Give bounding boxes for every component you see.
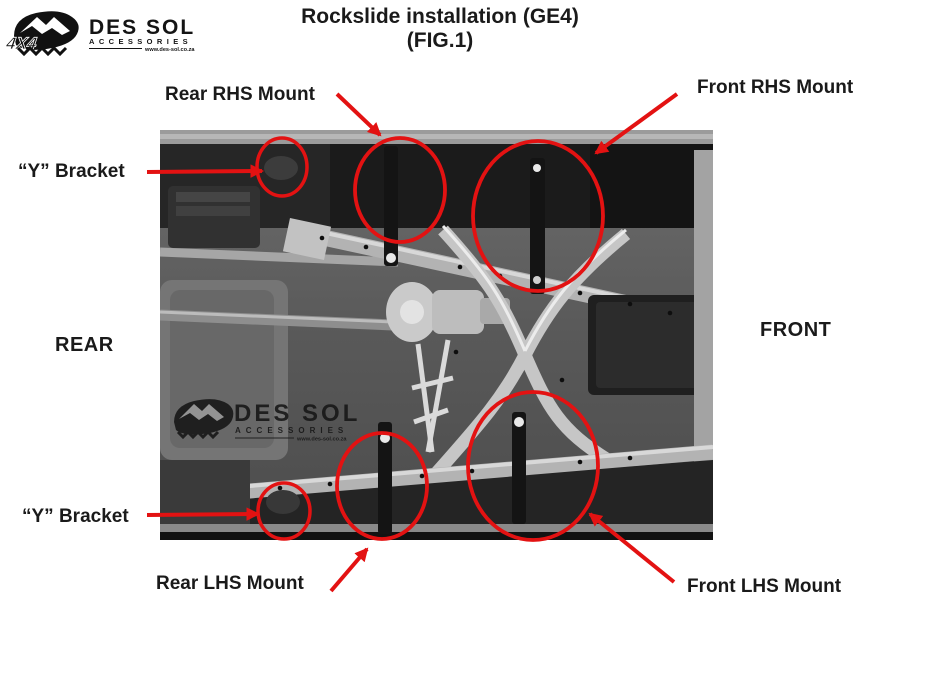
label-front-direction: FRONT — [760, 319, 831, 342]
arrow-rear-lhs-mount — [331, 549, 367, 591]
label-rear-lhs-mount: Rear LHS Mount — [156, 573, 304, 595]
des-sol-logo: 4X4 DES SOL ACCESSORIES www.des-sol.co.z… — [4, 4, 216, 60]
figure-title: Rockslide installation (GE4) (FIG.1) — [240, 5, 640, 53]
logo-tagline-text: ACCESSORIES — [89, 37, 192, 46]
watermark-website-text: www.des-sol.co.za — [296, 437, 347, 443]
label-rear-rhs-mount: Rear RHS Mount — [165, 84, 315, 106]
figure-page: 4X4 DES SOL ACCESSORIES www.des-sol.co.z… — [0, 0, 936, 700]
figure-title-line1: Rockslide installation (GE4) — [240, 5, 640, 29]
underbody-photo-graphic: DES SOL ACCESSORIES www.des-sol.co.za — [160, 130, 713, 540]
watermark-brand-text: DES SOL — [234, 400, 360, 427]
des-sol-logo-graphic: 4X4 DES SOL ACCESSORIES www.des-sol.co.z… — [4, 4, 216, 60]
label-y-bracket-rear: “Y” Bracket — [18, 161, 125, 183]
label-rear-direction: REAR — [55, 334, 114, 357]
label-front-lhs-mount: Front LHS Mount — [687, 576, 841, 598]
vehicle-underside-photo: DES SOL ACCESSORIES www.des-sol.co.za — [160, 130, 713, 540]
label-front-rhs-mount: Front RHS Mount — [697, 77, 853, 99]
4x4-mountain-icon: 4X4 — [4, 11, 79, 54]
arrow-rear-rhs-mount — [337, 94, 380, 135]
watermark-tagline-text: ACCESSORIES — [235, 426, 348, 435]
figure-title-line2: (FIG.1) — [240, 29, 640, 53]
logo-brand-text: DES SOL — [89, 16, 195, 39]
label-y-bracket-front: “Y” Bracket — [22, 506, 129, 528]
logo-website-text: www.des-sol.co.za — [144, 47, 195, 53]
